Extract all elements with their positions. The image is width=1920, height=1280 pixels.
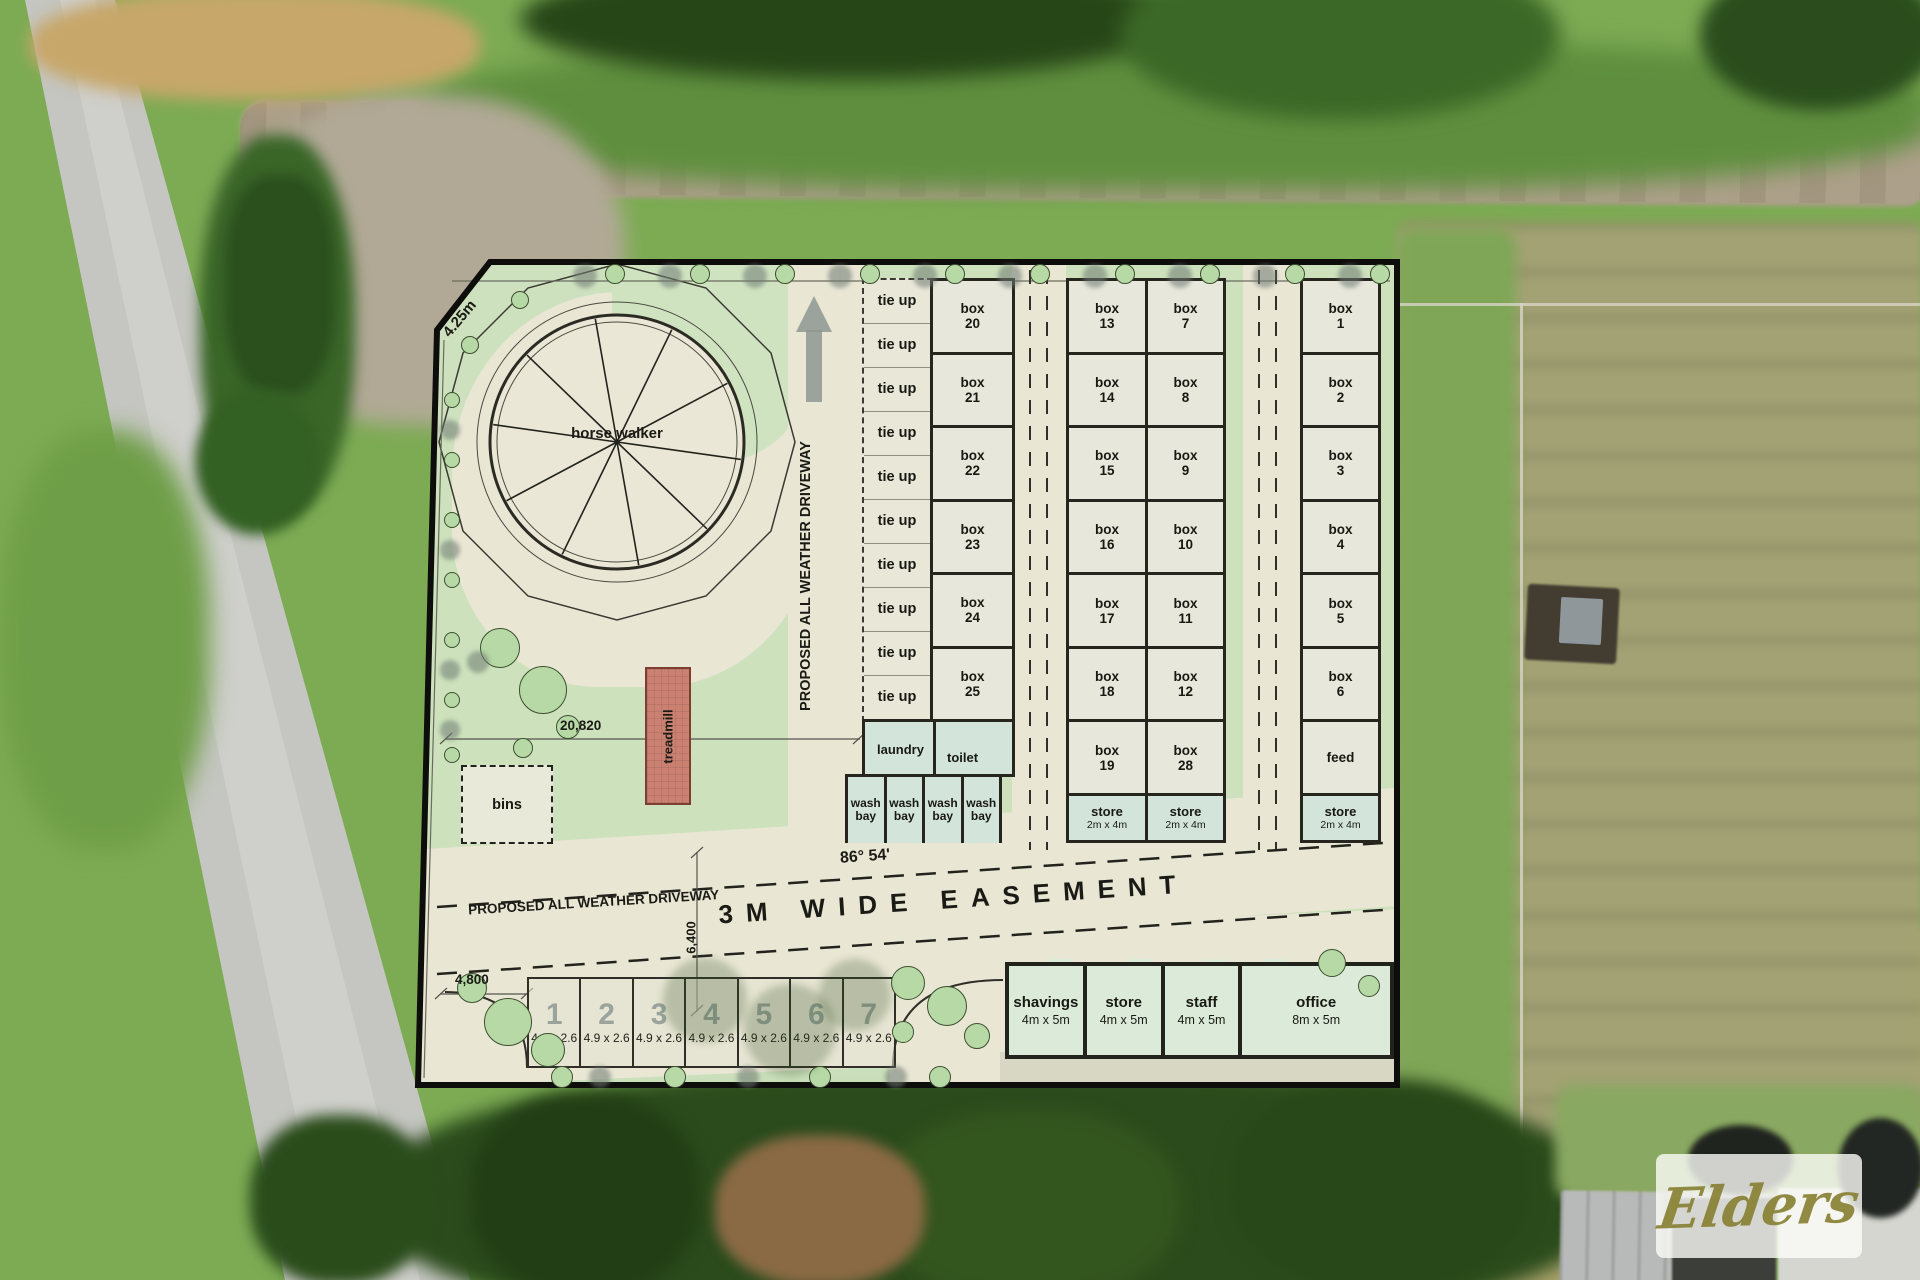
tree-icon bbox=[511, 291, 529, 309]
wash-bay: washbay bbox=[848, 777, 887, 843]
parking-space: 2 4.9 x 2.6 bbox=[581, 979, 633, 1066]
stable-box: box7 bbox=[1148, 281, 1223, 355]
tree-icon bbox=[1318, 949, 1346, 977]
tree-icon bbox=[444, 747, 460, 763]
photo-feature bbox=[30, 0, 480, 100]
stable-box: box6 bbox=[1303, 649, 1378, 723]
tree-shadow bbox=[1168, 264, 1192, 288]
photo-feature bbox=[250, 1115, 430, 1280]
tree-shadow bbox=[885, 1066, 907, 1088]
stable-box: box21 bbox=[933, 355, 1012, 429]
stable-box: box23 bbox=[933, 502, 1012, 576]
tie-up-stall: tie up bbox=[864, 324, 930, 368]
stable-box: feed bbox=[1303, 722, 1378, 793]
tree-shadow bbox=[743, 264, 767, 288]
tree-shadow bbox=[663, 958, 747, 1042]
photo-feature bbox=[1230, 1080, 1530, 1280]
easement-dimension: 6,400 bbox=[684, 908, 699, 968]
stable-aisle-2 bbox=[1243, 262, 1300, 857]
wall-divider bbox=[933, 722, 936, 774]
elders-logo: Elders bbox=[1655, 1169, 1864, 1242]
tree-shadow bbox=[1338, 264, 1362, 288]
stable-box: box10 bbox=[1148, 502, 1223, 576]
photo-feature bbox=[1396, 228, 1516, 1158]
stable-box: box8 bbox=[1148, 355, 1223, 429]
tie-up-stall: tie up bbox=[864, 500, 930, 544]
tree-icon bbox=[444, 392, 460, 408]
tie-up-stall: tie up bbox=[864, 412, 930, 456]
tree-icon bbox=[519, 666, 567, 714]
stable-box: box28 bbox=[1148, 722, 1223, 793]
tree-shadow bbox=[998, 264, 1022, 288]
photo-feature bbox=[470, 1095, 700, 1280]
tree-icon bbox=[664, 1066, 686, 1088]
treadmill: treadmill bbox=[645, 667, 691, 805]
stable-box: box9 bbox=[1148, 428, 1223, 502]
toilet-label: toilet bbox=[947, 750, 978, 765]
stable-box: box12 bbox=[1148, 649, 1223, 723]
tree-shadow bbox=[828, 264, 852, 288]
stable-box: box24 bbox=[933, 575, 1012, 649]
stable-box: box17 bbox=[1069, 575, 1145, 649]
tree-icon bbox=[513, 738, 533, 758]
stable-box: box19 bbox=[1069, 722, 1145, 793]
tree-icon bbox=[891, 966, 925, 1000]
tree-icon bbox=[892, 1021, 914, 1043]
stable-box: box25 bbox=[933, 649, 1012, 720]
stable-column-boxes-13-19: box13 box14 box15 box16 box17 box18 box1… bbox=[1066, 278, 1148, 796]
stable-column-boxes-20-25: box20 box21 box22 box23 box24 box25 bbox=[930, 278, 1015, 722]
tree-icon bbox=[927, 986, 967, 1026]
building-room: staff 4m x 5m bbox=[1165, 966, 1243, 1055]
stable-box: box2 bbox=[1303, 355, 1378, 429]
tie-up-stall: tie up bbox=[864, 676, 930, 719]
tree-shadow bbox=[440, 720, 460, 740]
photo-feature bbox=[1400, 303, 1920, 306]
photo-feature bbox=[225, 175, 335, 395]
stable-box: box22 bbox=[933, 428, 1012, 502]
stable-box: box15 bbox=[1069, 428, 1145, 502]
wash-bay: washbay bbox=[925, 777, 964, 843]
tree-icon bbox=[1285, 264, 1305, 284]
stable-box: box13 bbox=[1069, 281, 1145, 355]
amenities-building: shavings 4m x 5m store 4m x 5m staff 4m … bbox=[1005, 962, 1394, 1059]
tree-icon bbox=[1358, 975, 1380, 997]
width-dimension: 20,820 bbox=[560, 718, 601, 733]
tie-up-stall: tie up bbox=[864, 456, 930, 500]
tree-shadow bbox=[440, 420, 460, 440]
laundry-toilet-block: laundry toilet bbox=[862, 719, 1015, 777]
driveway-vertical-label: PROPOSED ALL WEATHER DRIVEWAY bbox=[798, 401, 814, 751]
direction-arrow bbox=[806, 330, 822, 402]
elders-watermark: Elders bbox=[1656, 1154, 1862, 1258]
horse-walker-label: horse walker bbox=[542, 425, 692, 442]
stable-box: box11 bbox=[1148, 575, 1223, 649]
stable-box: box18 bbox=[1069, 649, 1145, 723]
tree-shadow bbox=[1253, 264, 1277, 288]
wash-bay: washbay bbox=[887, 777, 926, 843]
tree-icon bbox=[1200, 264, 1220, 284]
photo-feature bbox=[195, 390, 320, 535]
tree-icon bbox=[444, 452, 460, 468]
stable-box: box4 bbox=[1303, 502, 1378, 576]
building-room: shavings 4m x 5m bbox=[1009, 966, 1087, 1055]
stable-column-boxes-7-12-28: box7 box8 box9 box10 box11 box12 box28 bbox=[1145, 278, 1226, 796]
tree-icon bbox=[444, 632, 460, 648]
direction-arrow-head bbox=[796, 296, 832, 332]
store-room: store 2m x 4m bbox=[1066, 793, 1148, 843]
bearing-label: 86° 54' bbox=[839, 846, 890, 867]
tree-icon bbox=[1370, 264, 1390, 284]
tree-icon bbox=[444, 692, 460, 708]
tie-up-stall: tie up bbox=[864, 368, 930, 412]
stable-aisle-1 bbox=[1012, 262, 1066, 857]
tie-up-column: tie uptie uptie uptie uptie uptie uptie … bbox=[862, 278, 933, 722]
stable-box: box16 bbox=[1069, 502, 1145, 576]
tree-shadow bbox=[467, 651, 489, 673]
tie-up-stall: tie up bbox=[864, 544, 930, 588]
tree-icon bbox=[860, 264, 880, 284]
tree-shadow bbox=[658, 264, 682, 288]
store-room: store 2m x 4m bbox=[1300, 793, 1381, 843]
aerial-site-plan: tie uptie uptie uptie uptie uptie uptie … bbox=[0, 0, 1920, 1280]
tie-up-stall: tie up bbox=[864, 632, 930, 676]
laundry-label: laundry bbox=[877, 742, 924, 757]
tree-icon bbox=[444, 572, 460, 588]
stable-box: box1 bbox=[1303, 281, 1378, 355]
photo-feature bbox=[1520, 303, 1523, 1158]
parking-dimension: 4,800 bbox=[455, 972, 489, 987]
tree-icon bbox=[690, 264, 710, 284]
tree-shadow bbox=[440, 660, 460, 680]
tree-shadow bbox=[819, 959, 891, 1031]
tree-icon bbox=[461, 336, 479, 354]
tree-shadow bbox=[1083, 264, 1107, 288]
tree-icon bbox=[484, 998, 532, 1046]
tree-icon bbox=[444, 512, 460, 528]
stable-box: box5 bbox=[1303, 575, 1378, 649]
tree-icon bbox=[605, 264, 625, 284]
store-room: store 2m x 4m bbox=[1145, 793, 1226, 843]
tree-icon bbox=[551, 1066, 573, 1088]
tree-shadow bbox=[737, 1066, 759, 1088]
tie-up-stall: tie up bbox=[864, 588, 930, 632]
wash-bays: washbay washbay washbay washbay bbox=[845, 774, 1002, 843]
stable-box: box14 bbox=[1069, 355, 1145, 429]
building-room: store 4m x 5m bbox=[1087, 966, 1165, 1055]
tree-shadow bbox=[440, 540, 460, 560]
bins-area: bins bbox=[461, 765, 553, 844]
tree-icon bbox=[945, 264, 965, 284]
tree-icon bbox=[1030, 264, 1050, 284]
tree-icon bbox=[775, 264, 795, 284]
stable-column-boxes-1-6-feed: box1 box2 box3 box4 box5 box6 feed bbox=[1300, 278, 1381, 796]
tree-icon bbox=[929, 1066, 951, 1088]
photo-feature bbox=[880, 1110, 1180, 1280]
tree-shadow bbox=[589, 1066, 611, 1088]
stable-box: box3 bbox=[1303, 428, 1378, 502]
wash-bay: washbay bbox=[964, 777, 1000, 843]
tree-icon bbox=[531, 1033, 565, 1067]
photo-feature bbox=[1559, 597, 1603, 645]
photo-feature bbox=[715, 1135, 925, 1280]
tree-shadow bbox=[573, 264, 597, 288]
tree-icon bbox=[1115, 264, 1135, 284]
photo-feature bbox=[0, 430, 210, 850]
tree-shadow bbox=[913, 264, 937, 288]
stable-box: box20 bbox=[933, 281, 1012, 355]
tree-icon bbox=[964, 1023, 990, 1049]
